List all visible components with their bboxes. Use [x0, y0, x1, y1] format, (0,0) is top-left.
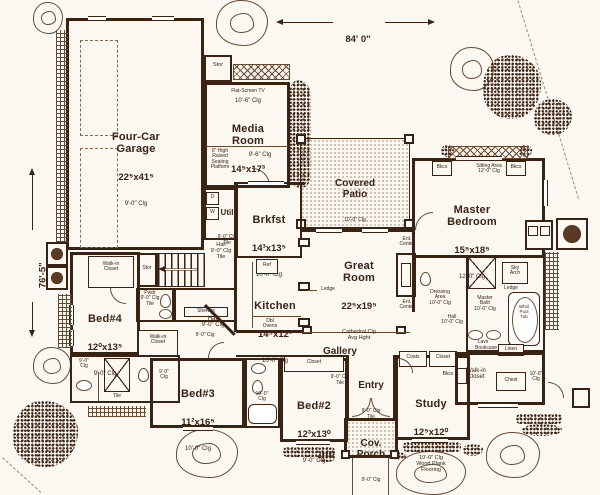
- window: [248, 181, 284, 186]
- shrub-icon: [483, 55, 541, 119]
- flowerbed-icon: [516, 414, 562, 424]
- planter-strip: [88, 406, 146, 417]
- fireplace-firebox: [401, 263, 411, 287]
- ac-unit: [46, 266, 68, 290]
- window: [316, 228, 342, 233]
- bed3-label: Bed#3 11²x16⁵ 10'-0" Clg: [160, 372, 236, 470]
- door-arc: [548, 382, 564, 398]
- media-tv-label: Flat-Screen TV: [220, 89, 276, 94]
- brkfst-label: Brkfst 14³x13⁵ 10'-0" Clg: [240, 198, 298, 296]
- dimension-arrow-left: [276, 19, 283, 25]
- patio-post: [296, 134, 306, 144]
- ref-label: Ref: [256, 263, 278, 268]
- window: [456, 156, 502, 161]
- master-wall: [412, 258, 415, 312]
- planter-strip: [545, 252, 559, 330]
- dimension-width-text: 84' 0": [345, 34, 370, 45]
- column: [298, 238, 310, 247]
- vanity-edge: [98, 372, 99, 401]
- chest-label: Chest: [496, 378, 526, 383]
- sink-icon: [486, 330, 501, 340]
- study-label: Study 12⁵x12⁰ 10'-0" Clg Wood Plank Floo…: [400, 382, 462, 491]
- dimension-line: [283, 22, 333, 23]
- great-room-label: Great Room 22⁵x19⁵ Cathedral Clg Avg Hgh…: [328, 244, 390, 359]
- garage-window: [152, 16, 174, 21]
- window: [183, 426, 213, 431]
- media-ceiling-upper: 10'-6" Clg: [226, 98, 270, 104]
- dressing-area-label: Dressing Area 10'-0" Clg: [420, 290, 460, 306]
- media-ceiling-lower: 9'-6" Clg: [240, 152, 280, 158]
- garage-size: 22⁵x41⁵: [100, 173, 172, 183]
- storage-label: Stor: [137, 266, 157, 271]
- wall-segment: [288, 182, 304, 185]
- porch-column: [390, 450, 399, 459]
- ledge-leader: [308, 290, 317, 291]
- bath-left-ceiling: 9'-0" Clg: [72, 359, 96, 370]
- toilet-icon: [138, 368, 149, 382]
- window: [362, 228, 388, 233]
- garage-label: Four-Car Garage 22⁵x41⁵ 9'-0" Clg: [100, 115, 172, 225]
- bed4-name: Bed#4: [72, 314, 138, 326]
- brkfst-name: Brkfst: [240, 215, 298, 227]
- pantry-ceiling: 9'-0" Clg: [184, 333, 226, 338]
- patio-name: Covered Patio: [328, 179, 382, 201]
- stoop-step: [572, 388, 590, 408]
- tree-icon: [486, 432, 540, 478]
- study-closet-label: Closet: [429, 355, 457, 360]
- front-walk: [352, 458, 353, 495]
- bath23-ceiling: 10'-0" Clg: [247, 392, 277, 403]
- entry-name: Entry: [351, 381, 391, 392]
- sitting-area-label: Sitting Area 12'-0" Clg: [453, 164, 525, 175]
- master-bath-label: Master Bath 10'-0" Clg: [466, 296, 504, 312]
- storage-label: Stor: [206, 63, 230, 69]
- ledge-label: Ledge: [316, 287, 340, 292]
- bed3-closet-label: Walk-in Closet: [138, 335, 178, 346]
- master-hall-label: Hall 10'-0" Clg: [436, 315, 468, 326]
- dimension-line: [32, 175, 33, 230]
- shower-icon: [104, 358, 130, 392]
- sky-arch-label: Sky Arch: [502, 266, 528, 277]
- garage-masonry-wall: [56, 30, 68, 250]
- study-name: Study: [400, 399, 462, 411]
- media-name: Media Room: [222, 124, 274, 148]
- kitchen-size: 14⁵x12³: [248, 330, 302, 340]
- hall-tile-label: Hall 9'-0" Clg Tile: [205, 243, 237, 261]
- sink-icon: [76, 380, 92, 391]
- dimension-line: [32, 302, 33, 330]
- stair-arrow-line: [162, 269, 196, 270]
- bkcs-label: Bkcs: [440, 372, 456, 377]
- toilet-icon: [160, 294, 171, 308]
- planter-strip: [58, 294, 72, 348]
- dimension-arrow-down: [29, 330, 35, 337]
- brkfst-size: 14³x13⁵: [240, 244, 298, 254]
- ledge-label: Ledge: [500, 286, 522, 291]
- study-notes: 10'-0" Clg Wood Plank Flooring: [400, 456, 462, 474]
- shower-icon: [468, 257, 496, 289]
- tub-icon: [248, 404, 277, 424]
- floor-plan: 84' 0" 76'-5" Four-Car Garage 22⁵x41⁵ 9'…: [0, 0, 600, 495]
- tree-icon: [216, 0, 268, 46]
- bed4-size: 12⁰x13⁵: [72, 343, 138, 353]
- great-room-size: 22⁵x19⁵: [328, 302, 390, 312]
- patio-post: [404, 134, 414, 144]
- bed3-ceiling: 10'-0" Clg: [160, 446, 236, 452]
- kitchen-ceiling: 10'-0" Clg: [248, 358, 302, 364]
- front-walk: [388, 458, 389, 495]
- dimension-arrow-right: [428, 19, 435, 25]
- patio-ceiling: 10'-0" Clg: [328, 218, 382, 223]
- garage-name: Four-Car Garage: [100, 132, 172, 156]
- dimension-line: [385, 22, 428, 23]
- shelves-label: Shelves: [184, 309, 228, 314]
- shrub-icon: [13, 401, 78, 467]
- utility-closet-shelf: [528, 226, 538, 236]
- stair-arrow: [158, 266, 165, 272]
- kitchen-label: Kitchen 14⁵x12³ 10'-0" Clg: [248, 284, 302, 382]
- bed4-closet-label: Walk-in Closet: [88, 262, 134, 273]
- sink-icon: [159, 309, 172, 319]
- entry-wall: [346, 355, 349, 418]
- powder-label: Pwdr 9'-0" Clg Tile: [137, 291, 163, 307]
- window: [296, 440, 330, 445]
- bed3-name: Bed#3: [160, 389, 236, 401]
- ent-center-label: Ent. Center: [394, 300, 420, 311]
- kitchen-wall: [234, 182, 237, 332]
- arbor-trellis: [233, 64, 290, 80]
- great-room-ceiling: Cathedral Clg Avg Hght: [328, 330, 390, 342]
- dimension-width: 84' 0": [333, 12, 383, 47]
- ac-unit: [556, 218, 588, 250]
- flowerbed-icon: [522, 424, 562, 436]
- ac-unit: [46, 242, 68, 266]
- kitchen-name: Kitchen: [248, 301, 302, 313]
- master-name: Master Bedroom: [430, 205, 514, 229]
- garage-window: [88, 16, 106, 21]
- bkcs-label: Bkcs: [432, 165, 452, 170]
- bookcase-label: Bookcase: [468, 346, 504, 351]
- platform-edge: [206, 146, 288, 147]
- window: [478, 403, 518, 408]
- shrub-icon: [33, 347, 71, 384]
- bed2-ceiling: 9'-0" Clg: [282, 458, 346, 464]
- tub-text: Whirl Pool Tub: [519, 304, 529, 319]
- window: [412, 438, 448, 443]
- tile-label: Tile: [107, 394, 127, 399]
- flowerbed-icon: [463, 444, 483, 456]
- window: [543, 180, 548, 206]
- dbl-ovens-label: Dbl Ovens: [258, 319, 282, 330]
- utility-closet-shelf: [540, 226, 550, 236]
- master-closet-label: Walk-in Closet: [458, 368, 494, 381]
- great-room-name: Great Room: [328, 261, 390, 285]
- tub-label: Whirl Pool Tub: [514, 305, 534, 320]
- dimension-arrow-up: [29, 168, 35, 175]
- master-closet-ceiling: 10'-0" Clg: [527, 372, 545, 383]
- media-platform-note: 6" High Raised Seating Platform: [206, 149, 234, 171]
- shrub-icon: [534, 99, 572, 135]
- porch-column: [341, 450, 350, 459]
- toilet-icon: [420, 272, 431, 286]
- garage-ceiling: 9'-0" Clg: [100, 201, 172, 207]
